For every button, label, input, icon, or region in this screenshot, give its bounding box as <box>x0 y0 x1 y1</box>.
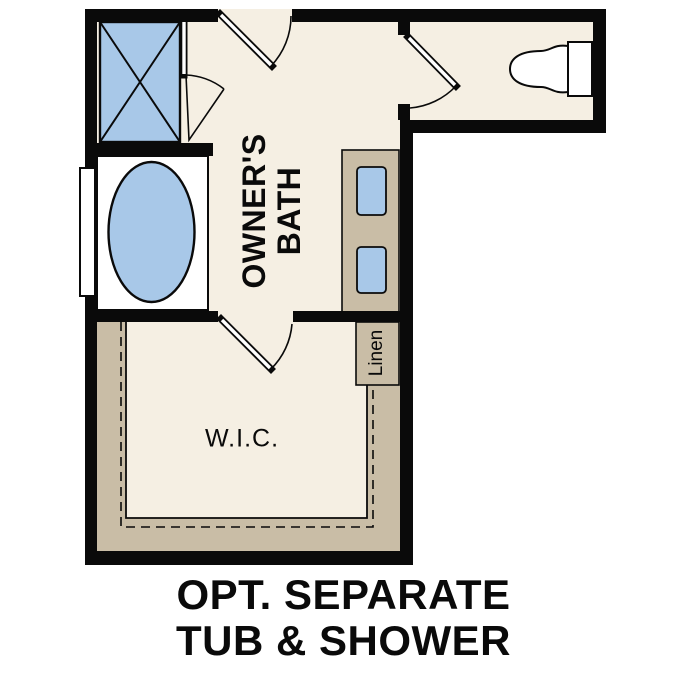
wall-bottom <box>85 551 413 565</box>
wall-top-right <box>292 9 606 22</box>
window <box>80 168 95 296</box>
sink-2 <box>357 247 386 293</box>
vanity-area <box>342 150 399 312</box>
caption-line1: OPT. SEPARATE <box>0 572 687 618</box>
owners-bath-label: OWNER'S BATH <box>237 133 307 288</box>
owners-bath-line2: BATH <box>272 133 307 288</box>
toilet-tank <box>568 42 592 96</box>
wall-top-left <box>85 9 218 22</box>
wall-above-tub <box>85 143 213 156</box>
linen-closet-label: Linen <box>366 330 388 377</box>
wall-wic-top-left <box>85 311 218 322</box>
owners-bath-line1: OWNER'S <box>237 133 272 288</box>
wall-toilet-room-bottom <box>400 120 606 133</box>
caption-line2: TUB & SHOWER <box>0 618 687 664</box>
wall-right-lower <box>400 120 413 565</box>
wic-floor <box>126 322 367 518</box>
tub-area <box>97 156 208 310</box>
shower-area <box>100 22 180 142</box>
tub <box>109 162 195 302</box>
wall-wic-top-right <box>293 311 413 322</box>
wall-toilet-door-jamb-bottom <box>398 104 410 120</box>
floorplan-page: OWNER'S BATH W.I.C. Linen OPT. SEPARATE … <box>0 0 687 687</box>
sink-1 <box>357 167 386 215</box>
wall-toilet-room-right <box>593 9 606 133</box>
wic-label: W.I.C. <box>205 425 279 454</box>
plan-caption: OPT. SEPARATE TUB & SHOWER <box>0 572 687 664</box>
